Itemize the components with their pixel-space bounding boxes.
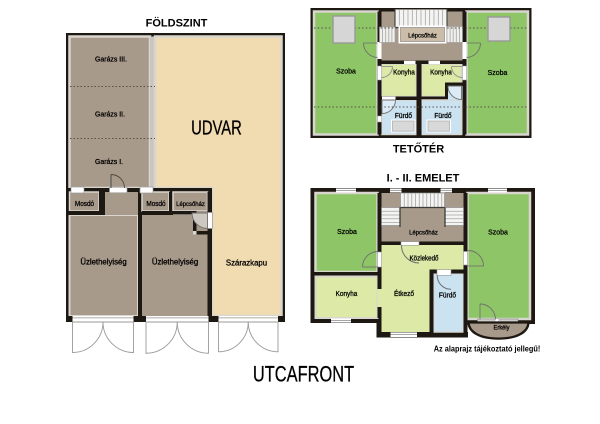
svg-text:Szoba: Szoba <box>336 67 356 75</box>
svg-text:Közlekedő: Közlekedő <box>410 255 439 263</box>
svg-text:Mosdó: Mosdó <box>146 201 165 208</box>
svg-text:UTCAFRONT: UTCAFRONT <box>253 362 354 387</box>
svg-text:Fürdő: Fürdő <box>395 113 412 120</box>
svg-text:Szárazkapu: Szárazkapu <box>226 259 267 268</box>
svg-text:Üzlethelyiség: Üzlethelyiség <box>152 258 198 267</box>
svg-text:Lépcsőház: Lépcsőház <box>176 201 205 208</box>
svg-text:TETŐTÉR: TETŐTÉR <box>393 143 444 156</box>
svg-text:Garázs III.: Garázs III. <box>95 56 127 64</box>
svg-text:Étkező: Étkező <box>394 289 414 298</box>
svg-text:Garázs I.: Garázs I. <box>95 158 123 166</box>
svg-text:Az alaprajz tájékoztató jelleg: Az alaprajz tájékoztató jellegű! <box>434 344 541 353</box>
svg-text:FÖLDSZINT: FÖLDSZINT <box>146 17 208 30</box>
svg-text:Szoba: Szoba <box>337 228 357 236</box>
svg-text:Konyha: Konyha <box>393 69 415 76</box>
svg-text:Fürdő: Fürdő <box>439 292 456 299</box>
svg-text:Szoba: Szoba <box>488 69 508 77</box>
svg-text:Garázs II.: Garázs II. <box>95 110 125 118</box>
svg-text:Fürdő: Fürdő <box>434 113 451 120</box>
svg-text:Lépcsőház: Lépcsőház <box>408 32 437 39</box>
svg-text:I. - II. EMELET: I. - II. EMELET <box>387 173 460 185</box>
svg-text:Erkély: Erkély <box>494 324 511 331</box>
svg-text:UDVAR: UDVAR <box>191 116 242 139</box>
svg-text:Lépcsőház: Lépcsőház <box>409 229 438 236</box>
svg-text:Konyha: Konyha <box>336 291 358 298</box>
svg-text:Mosdó: Mosdó <box>75 201 94 208</box>
svg-text:Szoba: Szoba <box>488 228 508 236</box>
svg-text:Üzlethelyiség: Üzlethelyiség <box>80 258 126 267</box>
svg-text:Konyha: Konyha <box>430 69 452 76</box>
